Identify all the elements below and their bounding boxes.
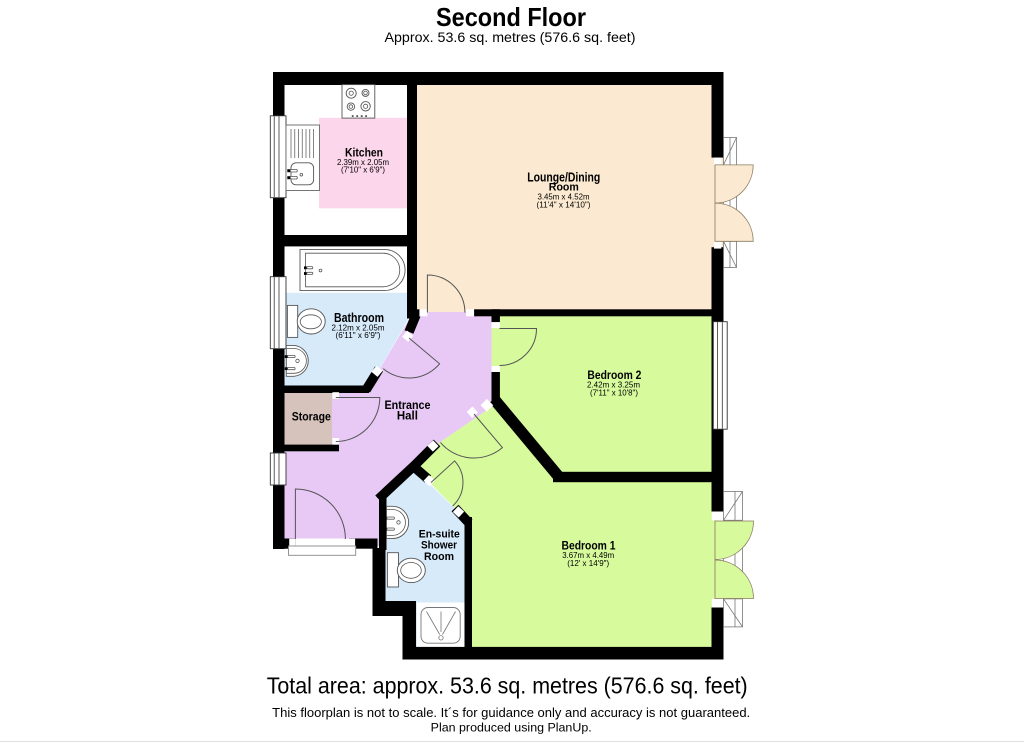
svg-text:Second Floor: Second Floor bbox=[436, 2, 586, 32]
svg-text:Plan produced using PlanUp.: Plan produced using PlanUp. bbox=[431, 720, 592, 734]
svg-text:(6'11" x 6'9"): (6'11" x 6'9") bbox=[336, 330, 381, 340]
svg-text:(12' x 14'9"): (12' x 14'9") bbox=[567, 558, 609, 568]
svg-text:This floorplan is not to scale: This floorplan is not to scale. It´s for… bbox=[272, 705, 750, 720]
svg-text:(11'4" x 14'10"): (11'4" x 14'10") bbox=[537, 201, 591, 210]
svg-text:Approx. 53.6 sq. metres (576.6: Approx. 53.6 sq. metres (576.6 sq. feet) bbox=[385, 29, 636, 45]
svg-text:(7'10" x 6'9"): (7'10" x 6'9") bbox=[341, 165, 385, 175]
svg-text:Storage: Storage bbox=[292, 409, 331, 423]
svg-text:Hall: Hall bbox=[397, 408, 418, 422]
svg-text:Room: Room bbox=[424, 551, 454, 563]
svg-text:Total area: approx. 53.6 sq. m: Total area: approx. 53.6 sq. metres (576… bbox=[267, 672, 748, 698]
svg-text:(7'11" x 10'8"): (7'11" x 10'8") bbox=[590, 387, 638, 397]
